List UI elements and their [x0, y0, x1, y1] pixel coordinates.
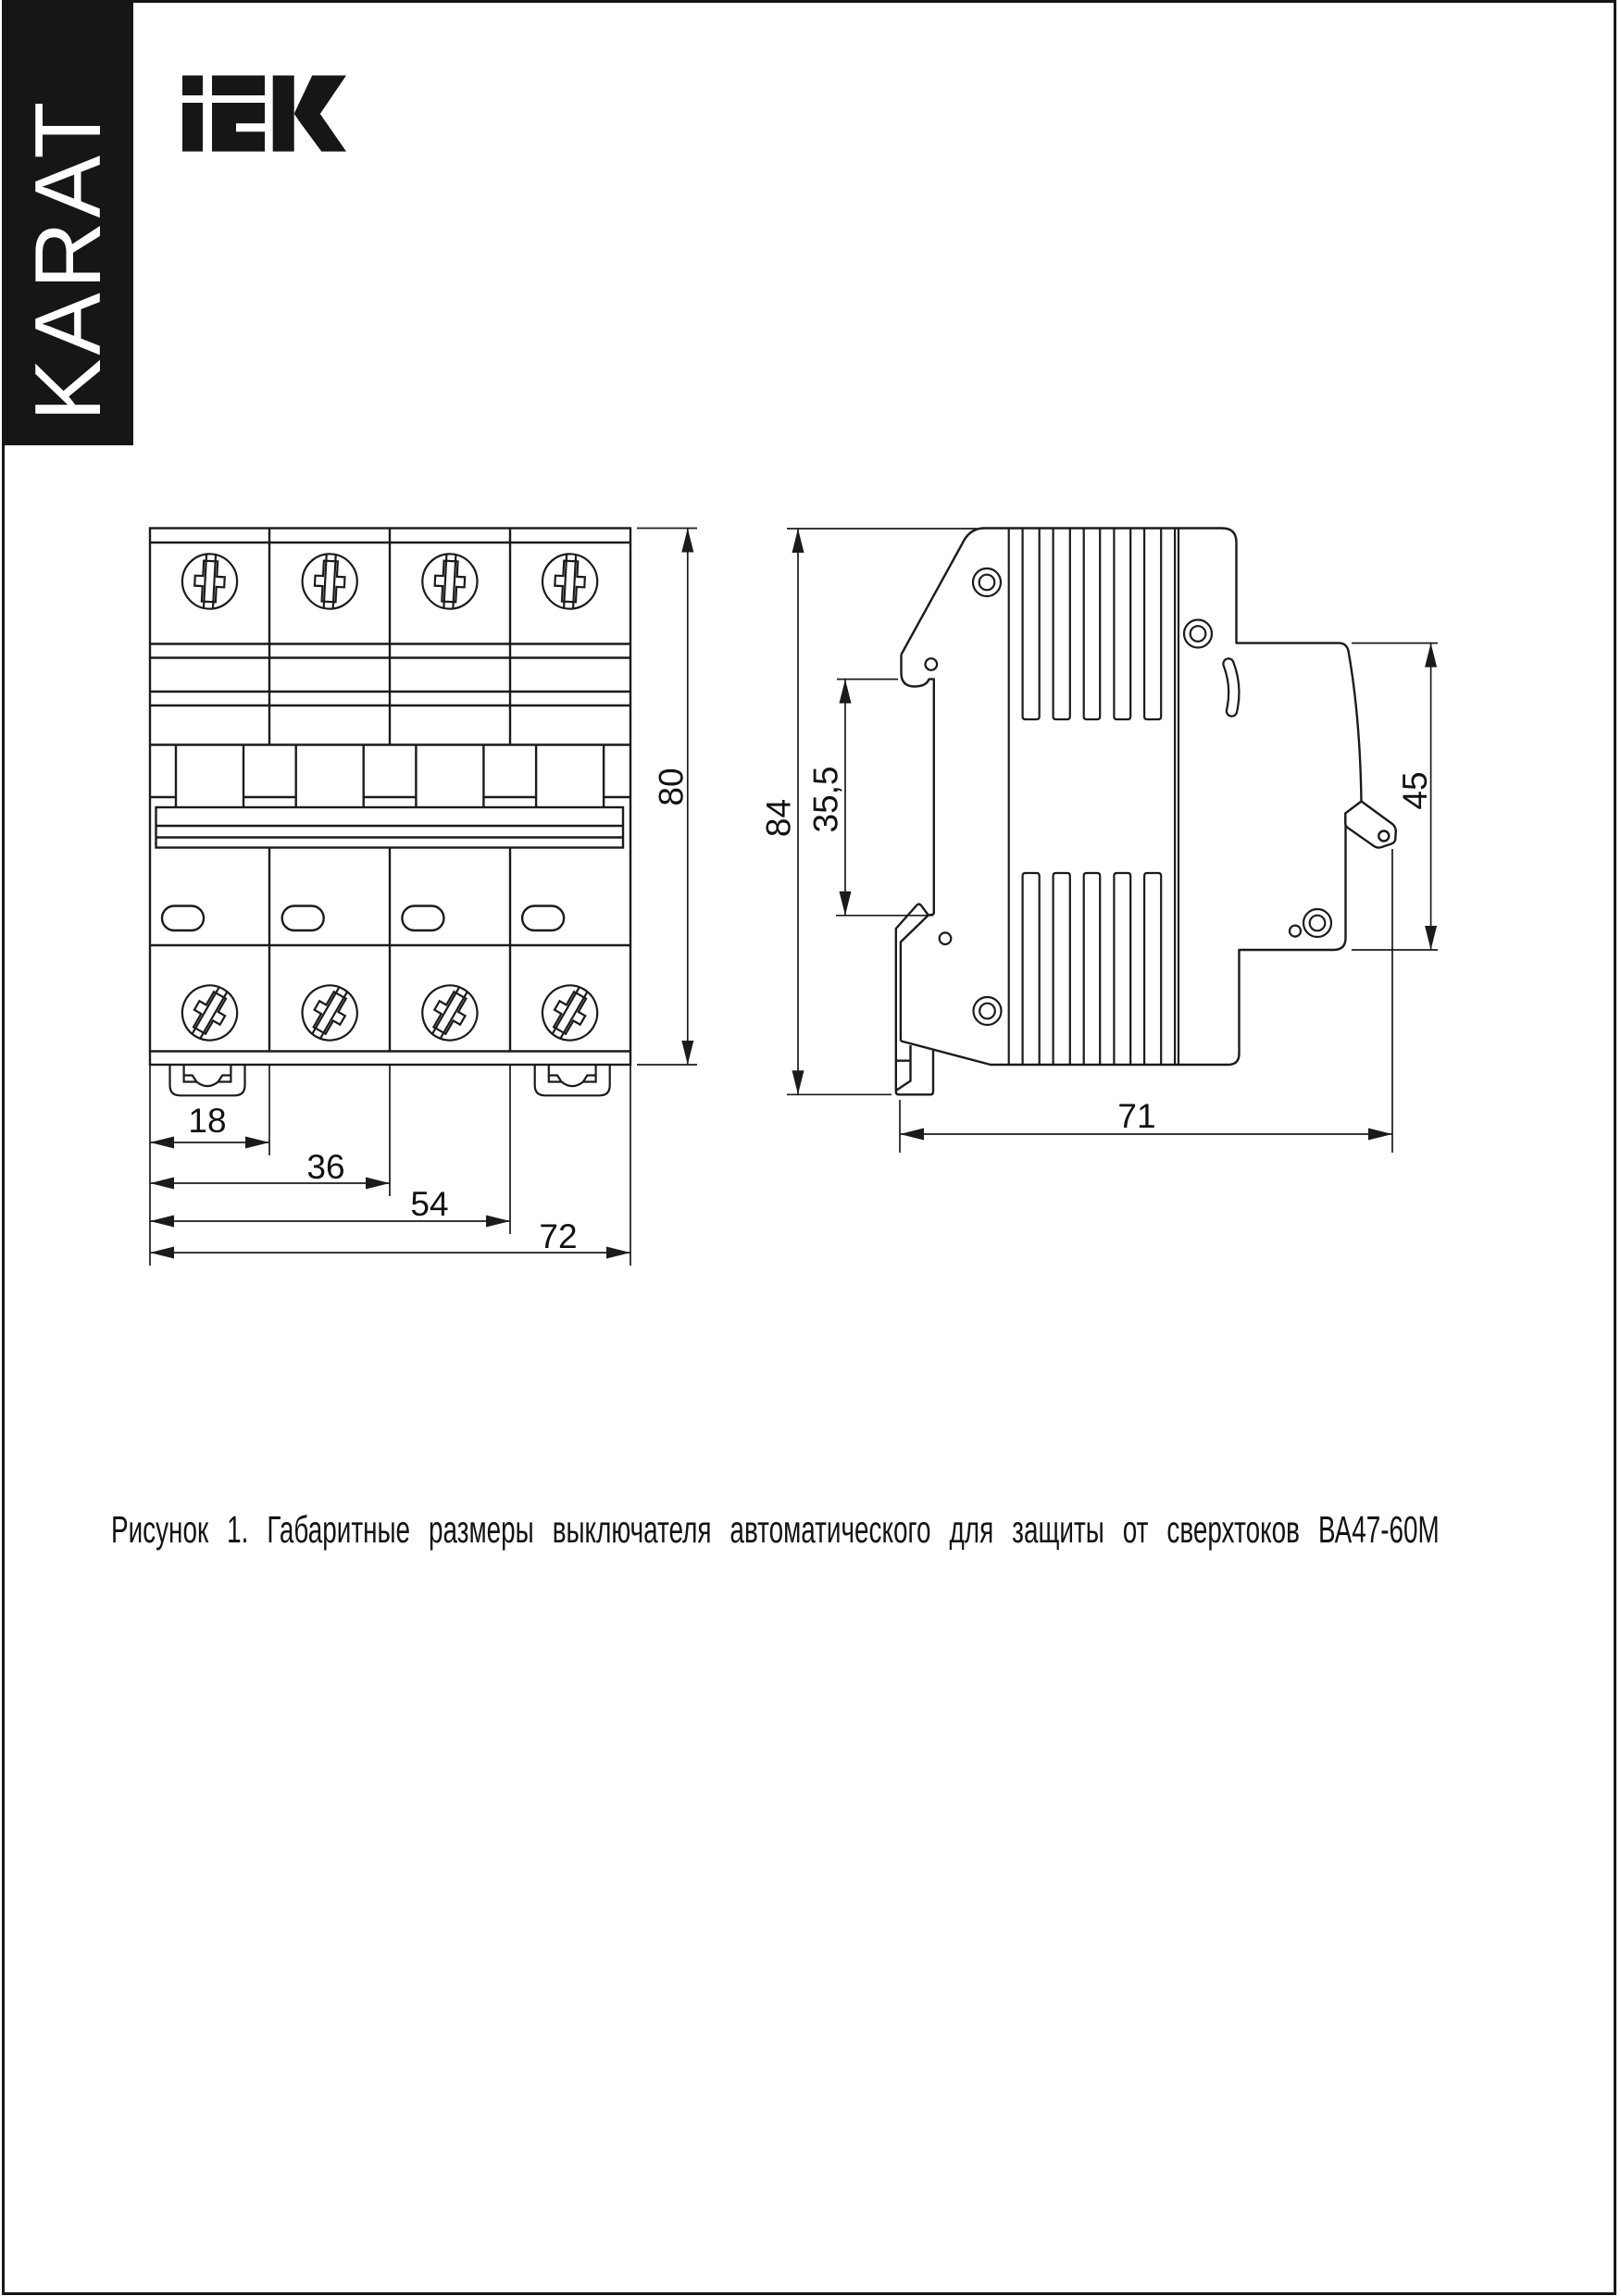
svg-text:36: 36: [306, 1148, 344, 1186]
svg-text:80: 80: [653, 767, 691, 805]
svg-text:71: 71: [1117, 1097, 1155, 1135]
svg-text:54: 54: [410, 1185, 448, 1223]
svg-text:45: 45: [1396, 771, 1434, 809]
svg-text:18: 18: [188, 1102, 226, 1140]
svg-text:84: 84: [760, 799, 798, 837]
svg-text:35,5: 35,5: [807, 766, 845, 832]
svg-text:KARAT: KARAT: [17, 98, 120, 421]
svg-text:72: 72: [539, 1217, 577, 1255]
